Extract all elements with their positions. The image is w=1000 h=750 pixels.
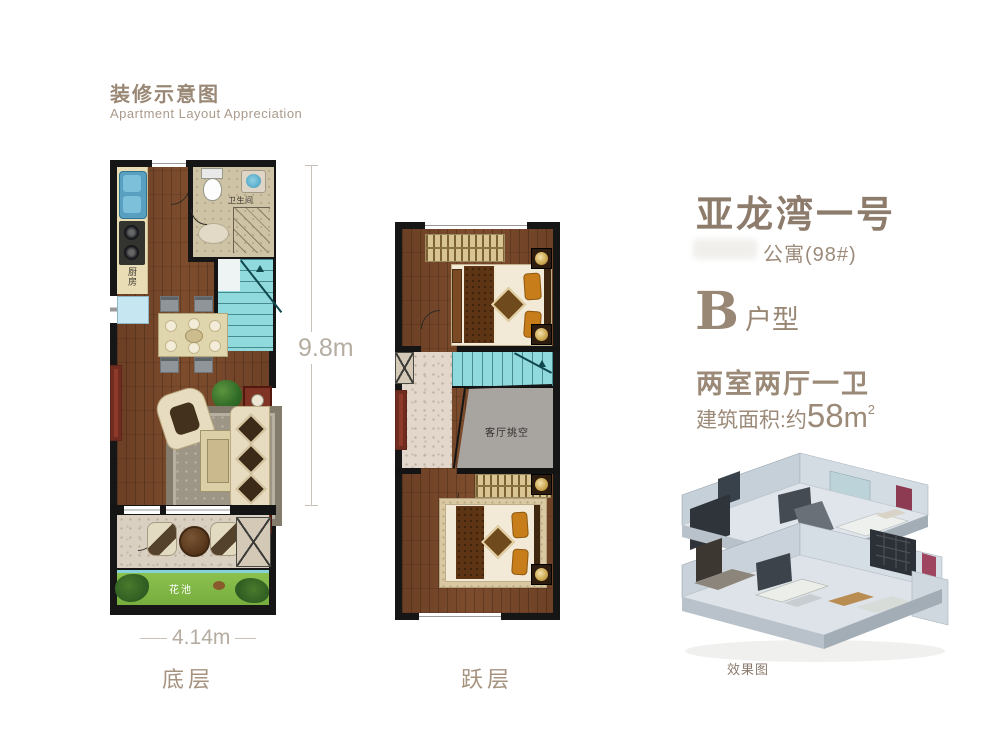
page-title: 装修示意图	[110, 78, 220, 107]
upper-side-window	[395, 390, 407, 450]
unit-type-label: 户型	[745, 298, 799, 337]
bathroom: 卫生间	[188, 167, 274, 262]
kitchen-window	[110, 296, 117, 323]
kitchen-stove	[119, 221, 145, 265]
area-value: 58	[807, 397, 844, 435]
area-unit: m	[844, 402, 868, 435]
dining-chair	[160, 296, 179, 312]
area-exponent: 2	[868, 402, 875, 417]
nightstand	[531, 248, 552, 269]
living-void-label: 客厅挑空	[485, 424, 529, 439]
nightstand	[531, 474, 552, 495]
bedroom1-window	[425, 222, 527, 229]
dining-table	[158, 313, 228, 357]
kitchen-label: 厨房	[126, 267, 139, 287]
dining-chair	[194, 296, 213, 312]
kitchen-counter: 厨房	[117, 167, 148, 294]
page-subtitle: Apartment Layout Appreciation	[110, 106, 302, 121]
render-3d	[660, 443, 960, 668]
unit-type: B 户型	[695, 286, 799, 338]
bedroom2-bed	[445, 504, 541, 582]
ground-floor-label: 底层	[162, 662, 214, 694]
terrace-table	[179, 526, 210, 557]
ground-floor-plan: 厨房 卫生间	[110, 160, 276, 615]
terrace-chair	[147, 522, 177, 556]
sofa	[230, 406, 270, 510]
shower-area	[233, 207, 270, 253]
area-prefix: 建筑面积:约	[696, 404, 807, 434]
page: 装修示意图 Apartment Layout Appreciation 厨房	[0, 0, 1000, 750]
render-caption: 效果图	[727, 659, 769, 678]
toilet	[203, 178, 222, 201]
kitchen-sink	[119, 171, 147, 219]
area-line: 建筑面积:约 58 m 2	[696, 397, 875, 435]
nightstand	[531, 564, 552, 585]
bathroom-label: 卫生间	[228, 195, 254, 206]
terrace-window	[166, 506, 230, 514]
stairs-up-arrow	[256, 265, 264, 272]
dim-tick	[305, 505, 318, 506]
rooms-summary: 两室两厅一卫	[696, 362, 870, 401]
flower-bed-label: 花池	[169, 581, 193, 596]
flower-bed: 花池	[117, 570, 269, 605]
stairs-up-arrow	[538, 360, 546, 367]
dining-chair	[194, 357, 213, 373]
dim-line-vertical	[311, 166, 312, 332]
dim-height-label: 9.8m	[295, 332, 357, 365]
staircase-upper	[452, 352, 553, 388]
terrace-door-opening	[124, 506, 160, 514]
duct-bay	[395, 352, 414, 384]
unit-type-letter: B	[695, 286, 739, 338]
kitchen-cabinet	[117, 296, 149, 324]
bedroom1-wardrobe	[425, 234, 505, 262]
equipment-bay	[236, 517, 271, 567]
dim-line-vertical	[311, 364, 312, 505]
entry-door-opening	[152, 160, 186, 167]
bathroom-sink	[241, 170, 266, 193]
side-door	[110, 365, 122, 441]
nightstand	[531, 324, 552, 345]
upper-floor-plan: 客厅挑空	[395, 222, 560, 620]
project-name: 亚龙湾一号	[696, 184, 896, 238]
upper-floor-label: 跃层	[461, 662, 513, 694]
bedroom2-window	[419, 613, 501, 620]
bath-mat	[198, 223, 229, 244]
building-number: 公寓(98#)	[763, 238, 857, 267]
dining-chair	[160, 357, 179, 373]
erased-watermark	[693, 239, 757, 259]
render-3d-image	[660, 443, 960, 668]
dim-width-label: 4.14m	[167, 626, 235, 650]
